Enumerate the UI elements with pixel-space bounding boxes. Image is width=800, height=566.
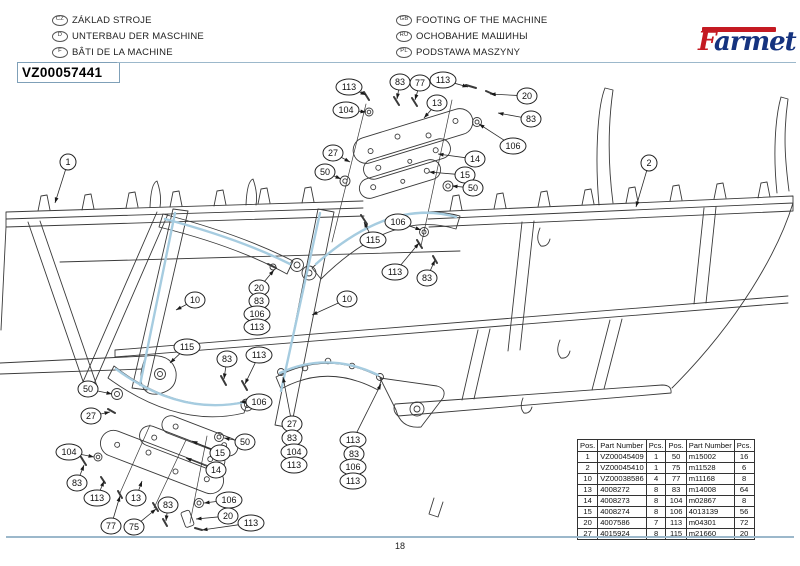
svg-text:50: 50 — [320, 167, 330, 177]
callout-50: 50 — [315, 164, 341, 180]
svg-text:113: 113 — [436, 75, 450, 85]
svg-text:27: 27 — [86, 411, 96, 421]
svg-text:106: 106 — [345, 462, 360, 472]
svg-text:20: 20 — [223, 511, 233, 521]
frame-line-art — [0, 85, 793, 530]
callout-20: 20 — [249, 270, 274, 296]
svg-text:50: 50 — [468, 183, 478, 193]
callout-27: 27 — [81, 408, 110, 424]
callout-106: 106 — [240, 394, 272, 410]
callout-113: 113 — [340, 473, 366, 489]
svg-text:83: 83 — [422, 273, 432, 283]
svg-text:14: 14 — [470, 154, 480, 164]
callout-113: 113 — [281, 457, 307, 473]
svg-text:15: 15 — [460, 170, 470, 180]
exploded-view-drawing: 1211383771132010413831062714155050115106… — [0, 0, 800, 566]
callout-115: 115 — [170, 339, 200, 363]
svg-text:27: 27 — [287, 419, 297, 429]
callout-14: 14 — [438, 151, 485, 167]
callout-50: 50 — [78, 381, 112, 397]
svg-text:113: 113 — [342, 82, 356, 92]
callout-layer: 1211383771132010413831062714155050115106… — [55, 72, 657, 535]
svg-text:50: 50 — [83, 384, 93, 394]
svg-text:113: 113 — [287, 460, 301, 470]
callout-83: 83 — [498, 111, 541, 127]
callout-20: 20 — [490, 88, 537, 104]
callout-20: 20 — [196, 508, 238, 524]
svg-text:113: 113 — [346, 435, 360, 445]
callout-83: 83 — [217, 351, 237, 379]
svg-text:115: 115 — [180, 342, 194, 352]
svg-text:13: 13 — [432, 98, 442, 108]
svg-text:104: 104 — [338, 105, 353, 115]
svg-text:77: 77 — [106, 521, 116, 531]
svg-text:83: 83 — [526, 114, 536, 124]
callout-27: 27 — [282, 377, 302, 432]
svg-text:83: 83 — [349, 449, 359, 459]
svg-text:113: 113 — [346, 476, 360, 486]
svg-text:83: 83 — [395, 77, 405, 87]
svg-text:113: 113 — [250, 322, 264, 332]
svg-text:20: 20 — [522, 91, 532, 101]
callout-113: 113 — [430, 72, 468, 88]
callout-113: 113 — [382, 243, 419, 280]
callout-113: 113 — [244, 319, 270, 335]
svg-text:10: 10 — [342, 294, 352, 304]
callout-50: 50 — [224, 434, 255, 450]
svg-text:83: 83 — [254, 296, 264, 306]
callout-2: 2 — [636, 155, 657, 207]
svg-text:104: 104 — [286, 447, 301, 457]
callout-113: 113 — [340, 384, 381, 448]
svg-text:13: 13 — [131, 493, 141, 503]
callout-106: 106 — [385, 214, 421, 230]
svg-text:106: 106 — [251, 397, 266, 407]
svg-text:113: 113 — [388, 267, 402, 277]
svg-text:113: 113 — [244, 518, 258, 528]
svg-text:14: 14 — [211, 465, 221, 475]
svg-text:83: 83 — [222, 354, 232, 364]
svg-text:106: 106 — [221, 495, 236, 505]
svg-text:27: 27 — [328, 148, 338, 158]
callout-83: 83 — [417, 260, 437, 286]
svg-text:1: 1 — [65, 157, 70, 167]
callout-10: 10 — [312, 291, 357, 315]
svg-text:77: 77 — [415, 78, 425, 88]
svg-text:50: 50 — [240, 437, 250, 447]
callout-83: 83 — [158, 497, 178, 521]
svg-text:113: 113 — [90, 493, 104, 503]
svg-text:106: 106 — [390, 217, 405, 227]
callout-50: 50 — [452, 180, 483, 196]
callout-113: 113 — [84, 481, 110, 506]
callout-77: 77 — [410, 75, 430, 100]
callout-106: 106 — [479, 124, 526, 154]
callout-104: 104 — [333, 102, 366, 118]
callout-106: 106 — [204, 492, 242, 508]
callout-113: 113 — [336, 79, 366, 95]
callout-1: 1 — [55, 154, 76, 203]
svg-text:15: 15 — [215, 448, 225, 458]
svg-text:20: 20 — [254, 283, 264, 293]
highlight-strokes — [116, 213, 456, 405]
svg-text:83: 83 — [287, 433, 297, 443]
svg-text:115: 115 — [366, 235, 380, 245]
svg-text:106: 106 — [249, 309, 264, 319]
callout-83: 83 — [67, 465, 87, 491]
callout-13: 13 — [126, 481, 146, 506]
svg-text:83: 83 — [163, 500, 173, 510]
callout-13: 13 — [424, 95, 447, 118]
callout-113: 113 — [245, 347, 272, 384]
callout-75: 75 — [124, 509, 156, 535]
svg-text:75: 75 — [129, 522, 139, 532]
svg-text:104: 104 — [61, 447, 76, 457]
callout-27: 27 — [323, 145, 350, 162]
svg-text:83: 83 — [72, 478, 82, 488]
callout-83: 83 — [390, 74, 410, 99]
svg-text:2: 2 — [646, 158, 651, 168]
svg-text:113: 113 — [252, 350, 266, 360]
svg-text:106: 106 — [505, 141, 520, 151]
svg-text:10: 10 — [190, 295, 200, 305]
callout-10: 10 — [176, 292, 205, 310]
callout-104: 104 — [56, 444, 94, 460]
